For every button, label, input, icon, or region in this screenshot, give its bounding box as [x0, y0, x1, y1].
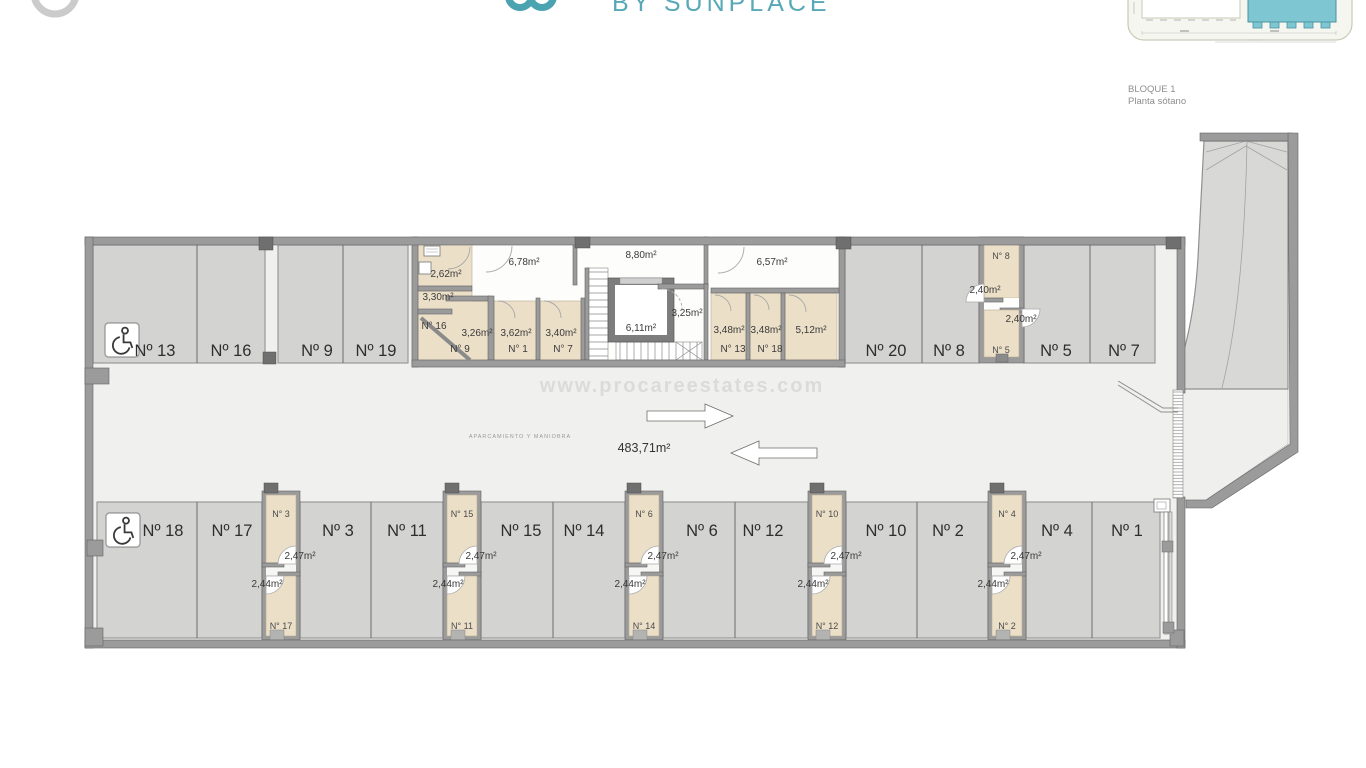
storage-label: N° 2	[998, 621, 1016, 631]
room-label: N° 16	[421, 321, 447, 332]
room-label: N° 1	[508, 344, 528, 355]
storage-label: N° 6	[635, 509, 653, 519]
room-area: 2,62m²	[430, 269, 462, 280]
storage-area: 2,47m²	[830, 551, 862, 562]
room-area: 3,30m²	[422, 292, 454, 303]
garage-door	[1164, 512, 1168, 634]
parking-label: Nº 16	[211, 342, 252, 360]
core-block: 2,62m² 3,30m² N° 16 3,26m² N° 9 6,78m² 3…	[412, 237, 845, 367]
parking-label: Nº 7	[1108, 342, 1140, 360]
storage-area: 2,44m²	[614, 579, 646, 590]
storage-area: 2,44m²	[251, 579, 283, 590]
watermark: www.procareestates.com	[539, 375, 824, 397]
lift-area: 6,11m²	[626, 323, 657, 334]
parking-label: Nº 4	[1041, 522, 1073, 540]
zone-label: APARCAMIENTO Y MANIOBRA	[469, 434, 571, 440]
storage-label: N° 12	[816, 621, 839, 631]
storage-label: N° 11	[451, 621, 473, 631]
storage-area: 2,40m²	[969, 285, 1001, 296]
room-area: 3,48m²	[713, 325, 745, 336]
room-area: 5,12m²	[795, 325, 827, 336]
storage-label: N° 10	[816, 509, 839, 519]
parking-label: Nº 6	[686, 522, 718, 540]
parking-label: Nº 8	[933, 342, 965, 360]
storage-area: 2,47m²	[465, 551, 497, 562]
storage-label: N° 17	[270, 621, 293, 631]
storage-area: 2,44m²	[797, 579, 829, 590]
parking-label: Nº 17	[212, 522, 253, 540]
parking-label: Nº 3	[322, 522, 354, 540]
parking-label: Nº 9	[301, 342, 333, 360]
parking-label: Nº 20	[866, 342, 907, 360]
storage-area: 2,47m²	[647, 551, 679, 562]
storage-label: N° 4	[998, 509, 1016, 519]
room-label: N° 9	[450, 344, 470, 355]
parking-label: Nº 1	[1111, 522, 1143, 540]
ramp-grille	[1173, 390, 1183, 498]
storage-area: 2,44m²	[432, 579, 464, 590]
storage-label: N° 5	[992, 345, 1010, 355]
parking-label: Nº 13	[135, 342, 176, 360]
parking-label: Nº 14	[564, 522, 605, 540]
hall-area: 6,78m²	[508, 257, 540, 268]
parking-label: Nº 15	[501, 522, 542, 540]
room-label: N° 18	[757, 344, 783, 355]
room-area: 3,48m²	[750, 325, 782, 336]
parking-label: Nº 12	[743, 522, 784, 540]
storage-label: N° 8	[992, 251, 1010, 261]
storage-area: 2,47m²	[284, 551, 316, 562]
storage-area: 2,44m²	[977, 579, 1009, 590]
parking-label: Nº 5	[1040, 342, 1072, 360]
handicap-icon	[106, 513, 140, 547]
hall-area: 8,80m²	[625, 250, 657, 261]
parking-label: Nº 18	[143, 522, 184, 540]
storage-label: N° 3	[272, 509, 290, 519]
room-area: 3,40m²	[545, 328, 577, 339]
storage-label: N° 14	[633, 621, 656, 631]
parking-label: Nº 19	[356, 342, 397, 360]
aisle-area-label: 483,71m²	[618, 441, 671, 455]
page: BY SUNPLACE BLOQUE 1 Planta sótano	[0, 0, 1366, 768]
parking-label: Nº 11	[387, 522, 427, 540]
parking-label: Nº 10	[866, 522, 907, 540]
room-label: N° 7	[553, 344, 573, 355]
room-area: 3,26m²	[461, 328, 493, 339]
room-area: 3,25m²	[671, 308, 703, 319]
entry-ramp	[1170, 133, 1298, 508]
storage-area: 2,40m²	[1005, 314, 1037, 325]
room-area: 3,62m²	[500, 328, 532, 339]
room-label: N° 13	[720, 344, 746, 355]
hall-area: 6,57m²	[756, 257, 788, 268]
parking-label: Nº 2	[932, 522, 964, 540]
storage-area: 2,47m²	[1010, 551, 1042, 562]
storage-label: N° 15	[451, 509, 474, 519]
floor-plan: www.procareestates.com APARCAMIENTO Y MA…	[0, 0, 1366, 768]
